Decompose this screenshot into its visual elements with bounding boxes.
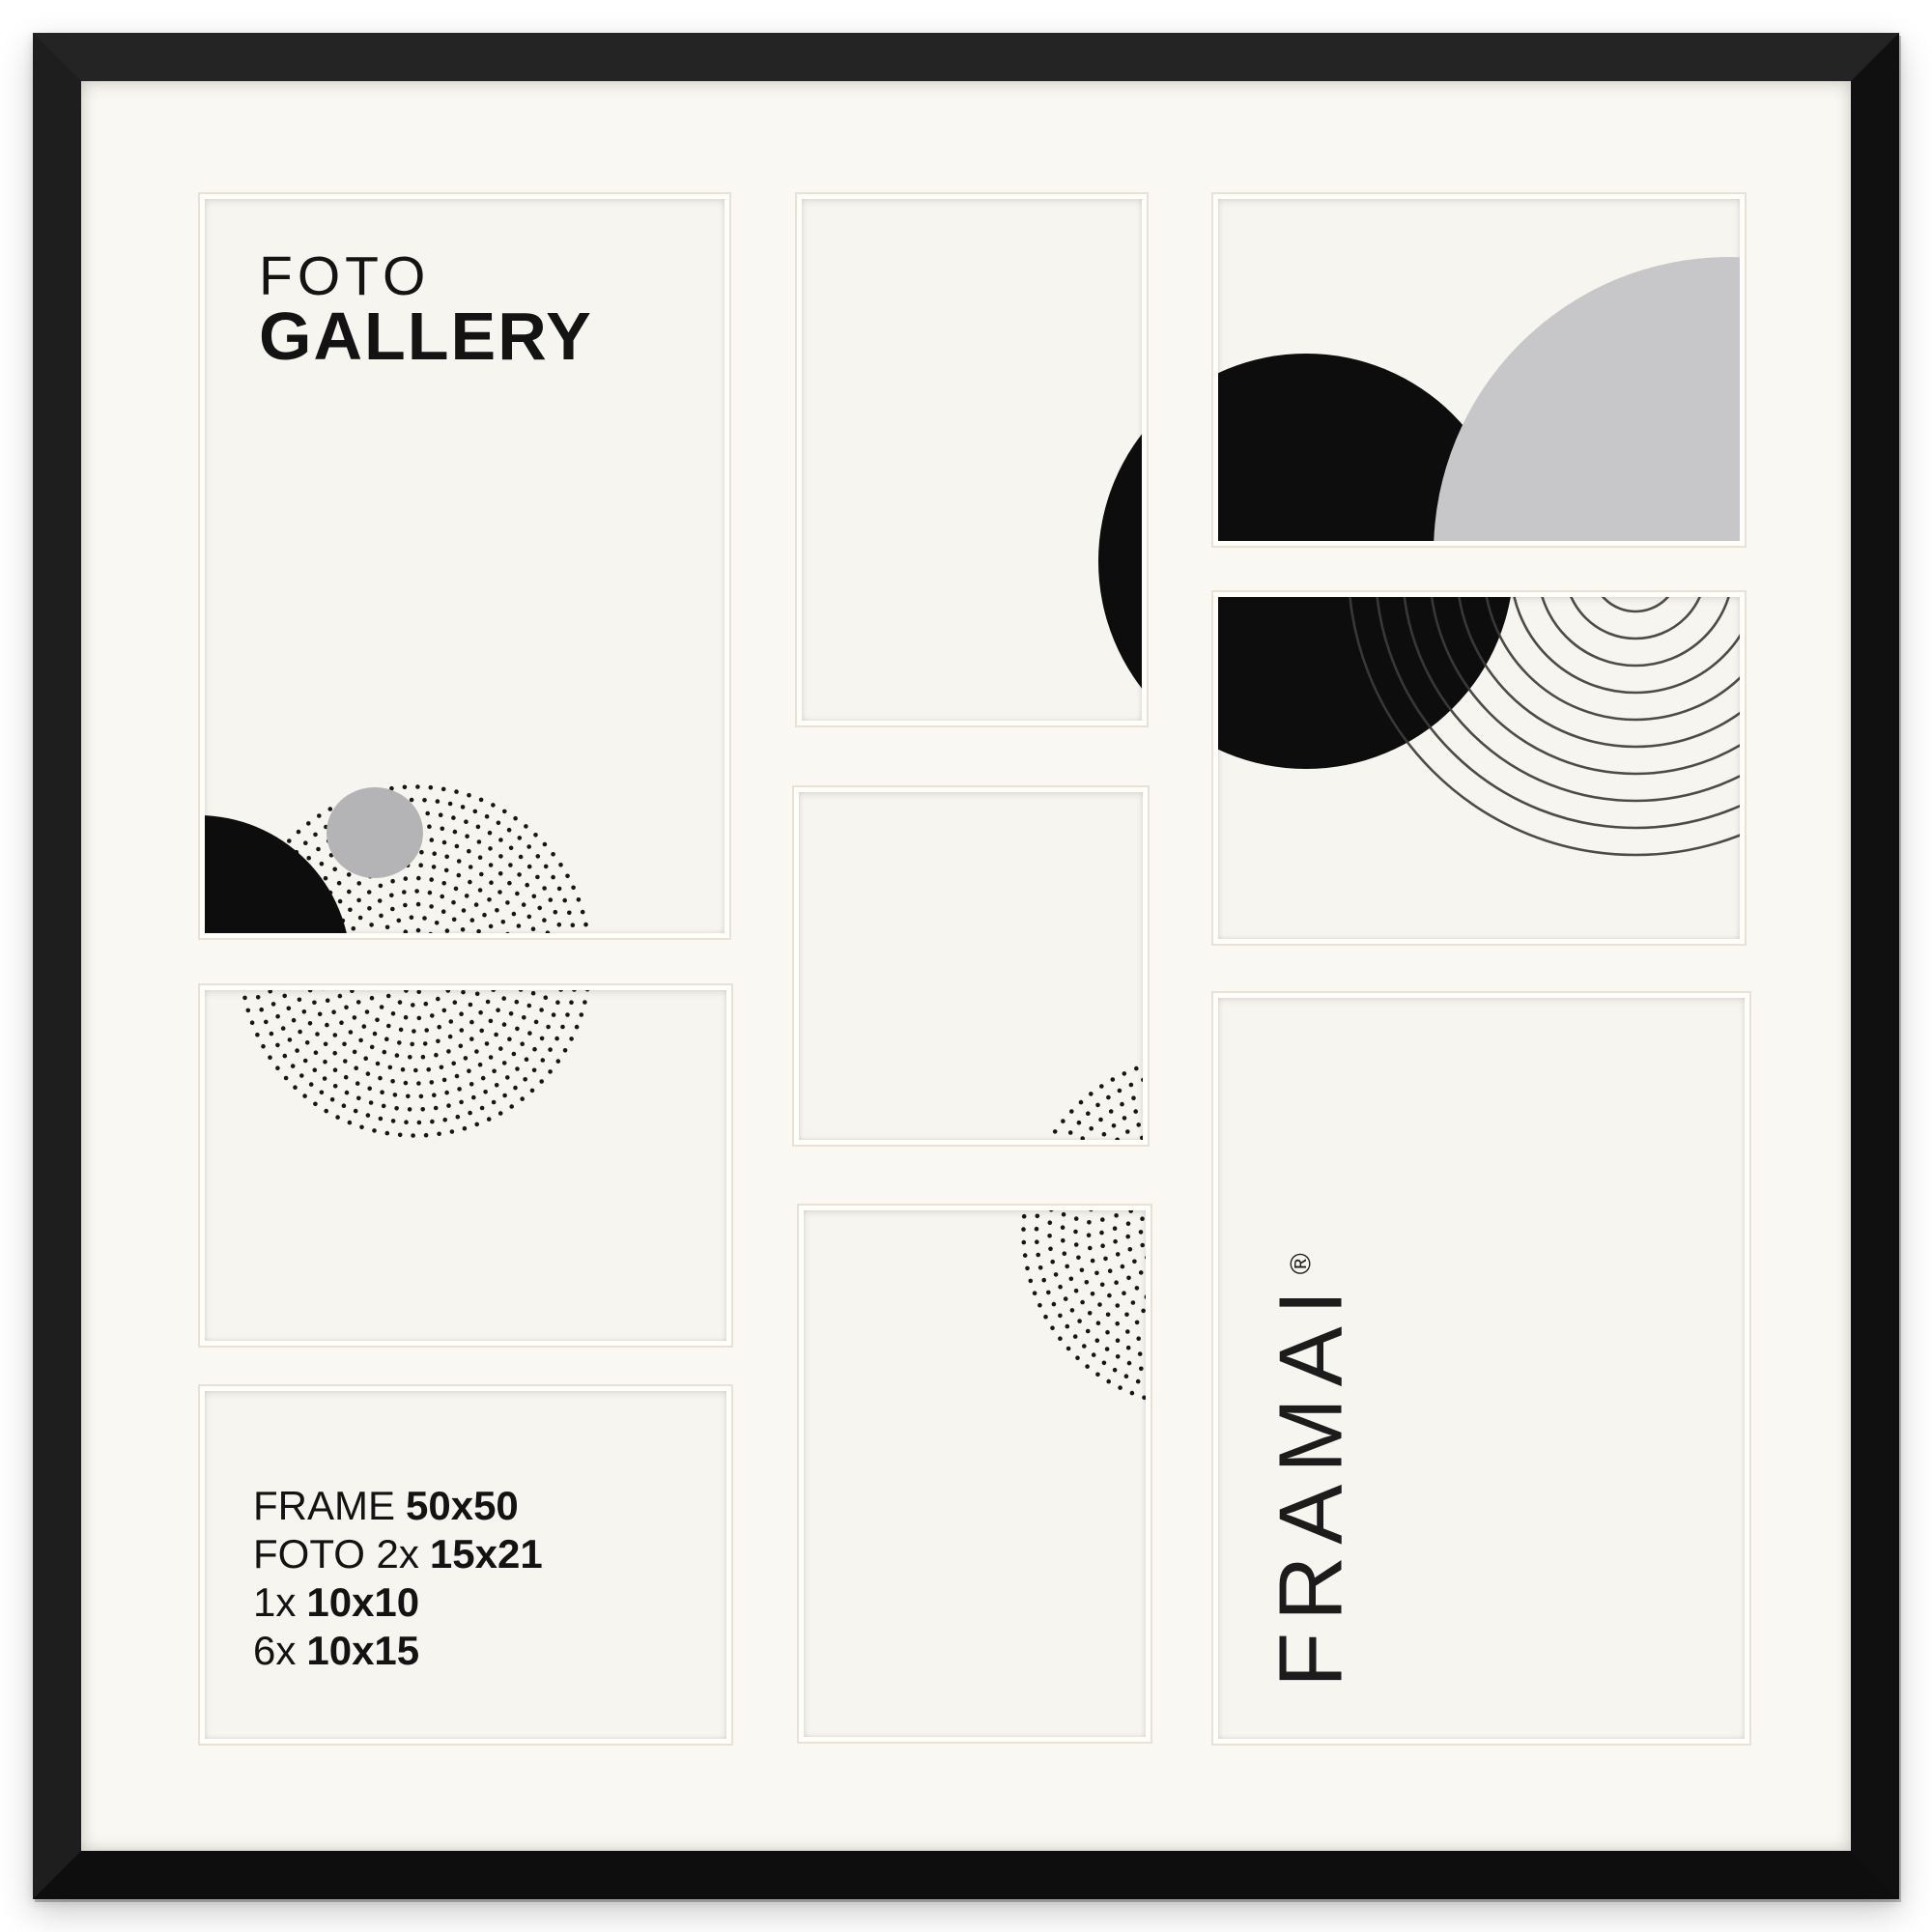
spec-row-frame-size: FRAME50x50 [253, 1482, 543, 1530]
mat-opening-top-middle [802, 199, 1142, 721]
abstract-artwork [1218, 199, 1740, 541]
mat-opening-bottom-left: FRAME50x50 FOTO 2x15x21 1x10x10 6x10x15 [205, 1391, 726, 1739]
abstract-artwork [802, 199, 1142, 721]
mat-opening-center-square [799, 792, 1143, 1140]
spec-row-foto-15x21: FOTO 2x15x21 [253, 1530, 543, 1578]
spec-prefix: FOTO 2x [253, 1531, 419, 1577]
spec-prefix: FRAME [253, 1483, 395, 1528]
abstract-artwork [799, 792, 1143, 1140]
spec-value: 50x50 [406, 1483, 519, 1528]
spec-value: 10x15 [306, 1628, 419, 1673]
spec-value: 15x21 [430, 1531, 543, 1577]
spec-row-foto-10x15: 6x10x15 [253, 1627, 543, 1675]
logo-line-gallery: GALLERY [259, 301, 593, 371]
mat-opening-top-left: FOTO GALLERY [205, 199, 724, 933]
brand-wordmark-rotated: FRAMAI® [1260, 1253, 1363, 1687]
spec-value: 10x10 [306, 1579, 419, 1625]
mat-opening-top-right [1218, 199, 1740, 541]
spec-row-foto-10x10: 1x10x10 [253, 1578, 543, 1627]
frame-specs: FRAME50x50 FOTO 2x15x21 1x10x10 6x10x15 [253, 1482, 543, 1675]
spec-prefix: 6x [253, 1628, 296, 1673]
abstract-artwork [804, 1210, 1146, 1737]
foto-gallery-logo: FOTO GALLERY [259, 247, 593, 371]
abstract-artwork [1218, 597, 1740, 939]
registered-trademark-symbol: ® [1286, 1253, 1318, 1274]
abstract-artwork [205, 990, 726, 1341]
brand-name: FRAMAI [1261, 1278, 1361, 1687]
mat-opening-left-middle [205, 990, 726, 1341]
mat-opening-bottom-middle [804, 1210, 1146, 1737]
logo-line-foto: FOTO [259, 247, 593, 305]
mat-opening-bottom-right: FRAMAI® [1218, 998, 1745, 1739]
mat-opening-right-second [1218, 597, 1740, 939]
product-photo: FOTO GALLERY FRAME50x50 FOTO 2x15x21 1x1… [0, 0, 1932, 1932]
spec-prefix: 1x [253, 1579, 296, 1625]
